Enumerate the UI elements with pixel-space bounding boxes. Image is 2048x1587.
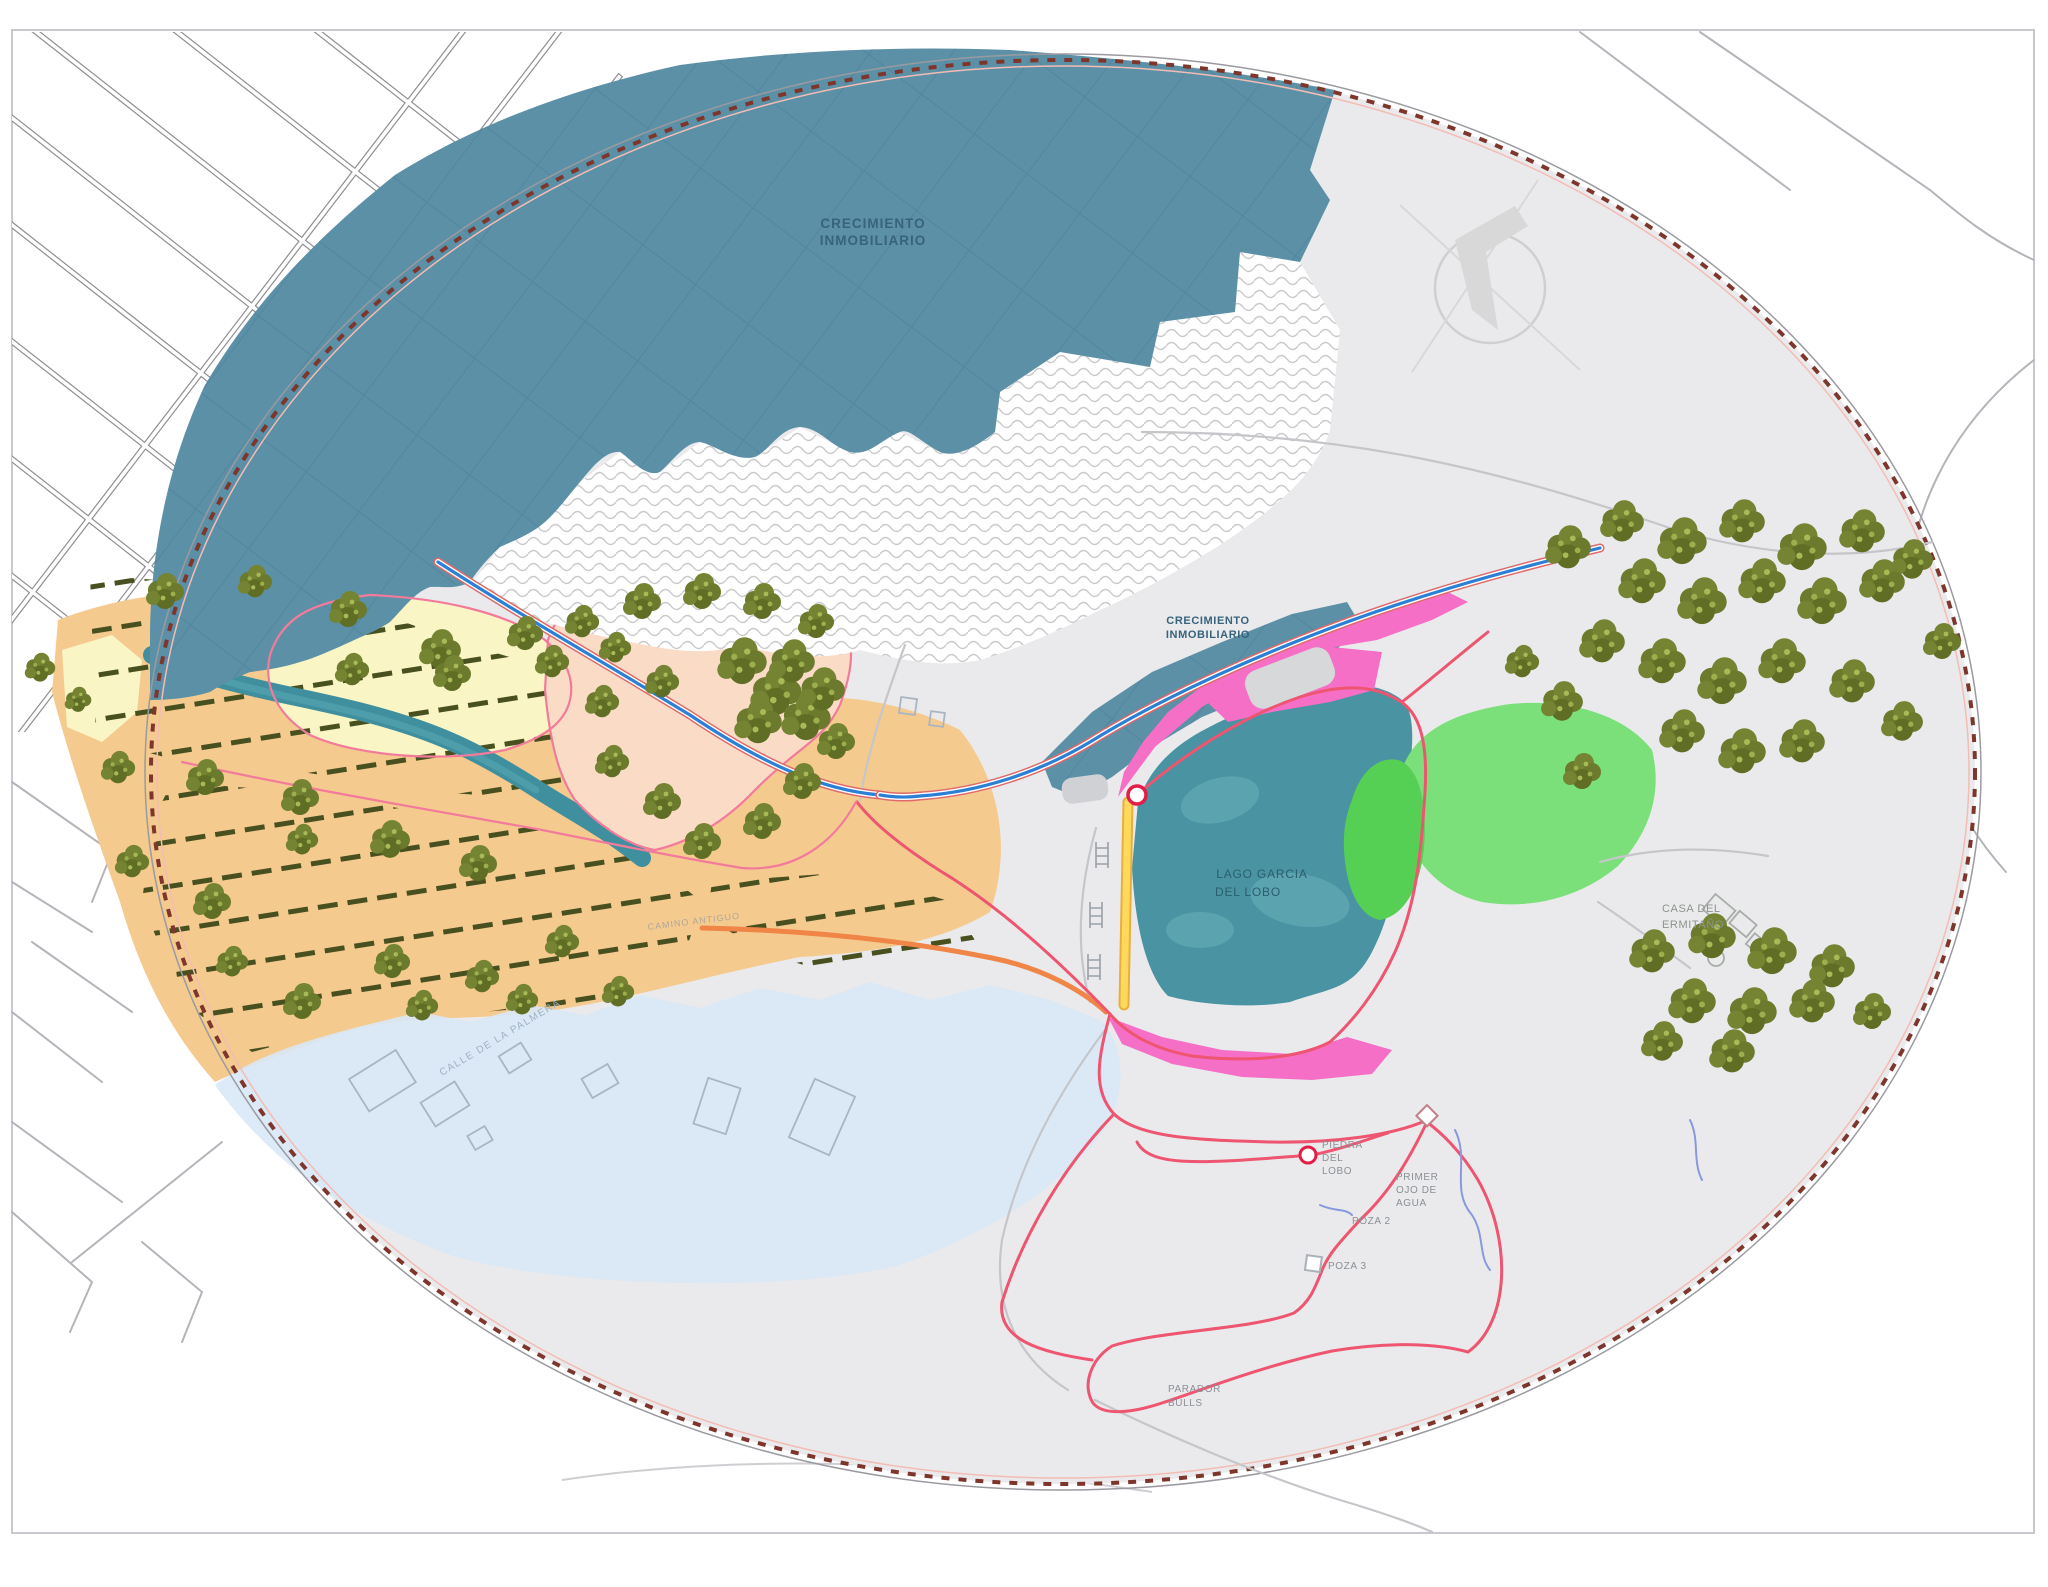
label-wolf-rock-line1: PIEDRA	[1322, 1140, 1363, 1151]
trailhead-marker	[1128, 786, 1146, 804]
label-parador-line1: PARADOR	[1168, 1384, 1221, 1395]
label-growth-top-line1: CRECIMIENTO	[820, 216, 925, 231]
label-hermit-house-line2: ERMITAÑO	[1662, 918, 1724, 931]
label-wolf-rock-line3: LOBO	[1322, 1166, 1352, 1177]
label-growth-mid-line1: CRECIMIENTO	[1166, 615, 1249, 627]
label-lake-line2: DEL LOBO	[1215, 885, 1281, 899]
label-hermit-house-line1: CASA DEL	[1662, 903, 1721, 915]
label-lake-line1: LAGO GARCIA	[1216, 867, 1308, 881]
yellow-road	[1124, 802, 1128, 1005]
label-wolf-rock-line2: DEL	[1322, 1153, 1343, 1164]
piedra-del-lobo-marker	[1300, 1147, 1316, 1163]
label-first-eye-line2: OJO DE	[1396, 1185, 1437, 1196]
label-parador-line2: BULLS	[1168, 1398, 1203, 1409]
label-first-eye-line1: PRIMER	[1396, 1172, 1439, 1183]
poza3-marker	[1305, 1255, 1322, 1272]
map-canvas: CRECIMIENTO INMOBILIARIO CRECIMIENTO INM…	[0, 0, 2048, 1587]
label-poza3: POZA 3	[1328, 1261, 1367, 1272]
label-growth-top-line2: INMOBILIARIO	[820, 233, 927, 248]
label-poza2: POZA 2	[1352, 1216, 1391, 1227]
label-first-eye-line3: AGUA	[1396, 1198, 1427, 1209]
site-plan-map: CRECIMIENTO INMOBILIARIO CRECIMIENTO INM…	[0, 0, 2048, 1587]
label-growth-mid-line2: INMOBILIARIO	[1166, 629, 1250, 641]
